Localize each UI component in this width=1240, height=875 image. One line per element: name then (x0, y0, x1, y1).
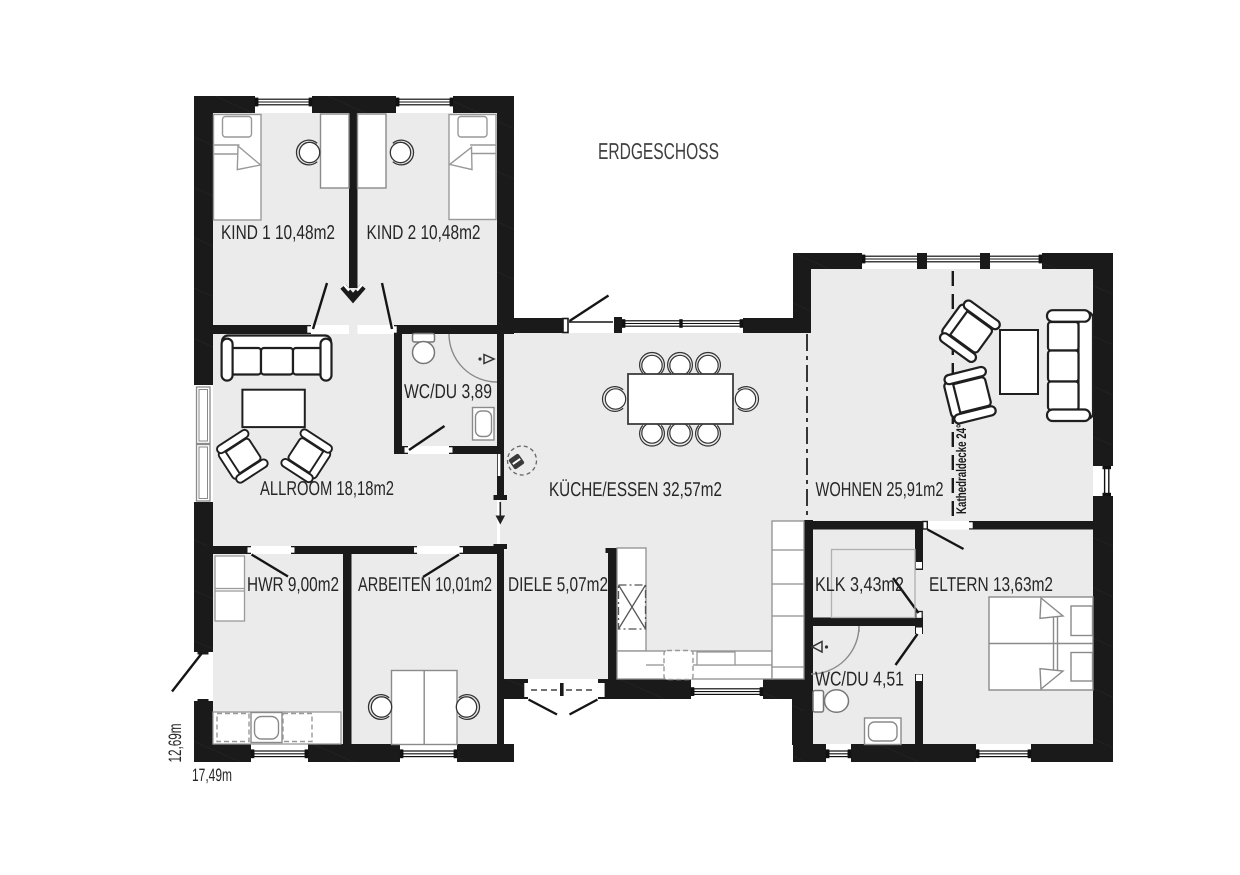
svg-text:17,49m: 17,49m (192, 765, 232, 785)
svg-text:ARBEITEN 10,01m2: ARBEITEN 10,01m2 (358, 574, 492, 596)
svg-text:KIND 2 10,48m2: KIND 2 10,48m2 (367, 222, 481, 244)
svg-text:WC/DU 3,89: WC/DU 3,89 (404, 381, 492, 403)
svg-text:ELTERN 13,63m2: ELTERN 13,63m2 (929, 574, 1053, 596)
svg-text:KÜCHE/ESSEN 32,57m2: KÜCHE/ESSEN 32,57m2 (549, 479, 722, 501)
svg-text:KLK 3,43m2: KLK 3,43m2 (815, 574, 904, 596)
svg-text:12,69m: 12,69m (165, 724, 185, 763)
svg-text:ERDGESCHOSS: ERDGESCHOSS (598, 138, 719, 164)
svg-text:ALLROOM 18,18m2: ALLROOM 18,18m2 (260, 478, 394, 500)
svg-text:Kathedraldecke 24°: Kathedraldecke 24° (953, 424, 969, 514)
svg-text:KIND 1 10,48m2: KIND 1 10,48m2 (221, 222, 335, 244)
svg-text:DIELE 5,07m2: DIELE 5,07m2 (508, 574, 608, 596)
svg-text:HWR 9,00m2: HWR 9,00m2 (247, 574, 339, 596)
svg-text:WC/DU 4,51: WC/DU 4,51 (815, 669, 904, 691)
svg-text:WOHNEN 25,91m2: WOHNEN 25,91m2 (816, 479, 944, 501)
